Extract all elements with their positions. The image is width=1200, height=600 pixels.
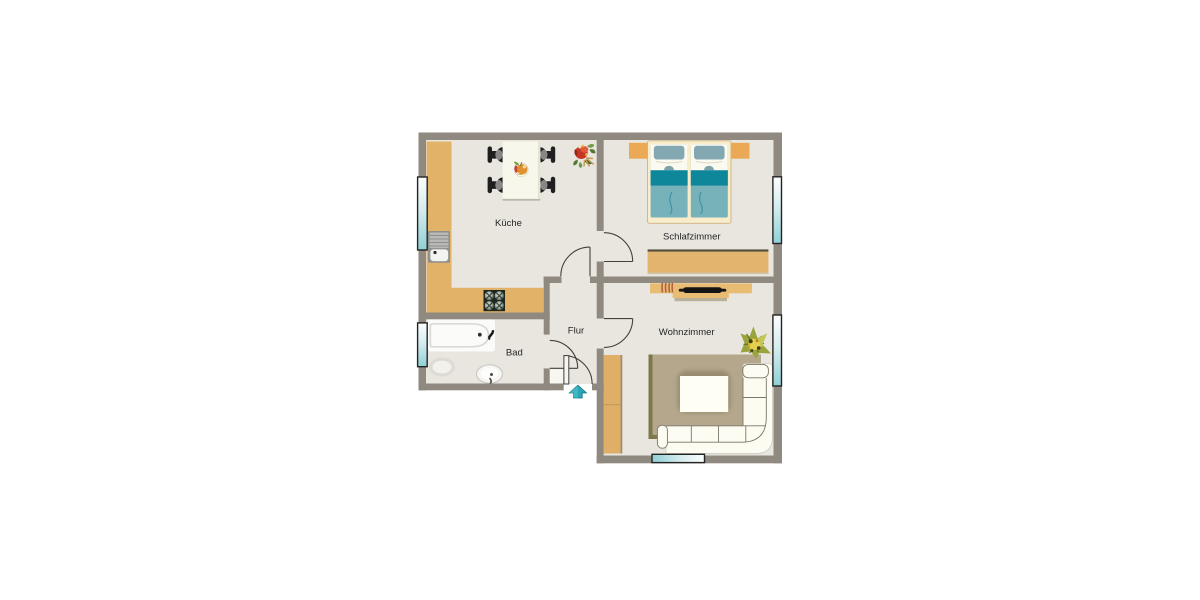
svg-text:Küche: Küche [495,218,522,229]
svg-text:Wohnzimmer: Wohnzimmer [659,327,715,338]
svg-text:Schlafzimmer: Schlafzimmer [663,231,721,242]
svg-text:Flur: Flur [568,325,584,336]
svg-text:Bad: Bad [506,347,523,358]
